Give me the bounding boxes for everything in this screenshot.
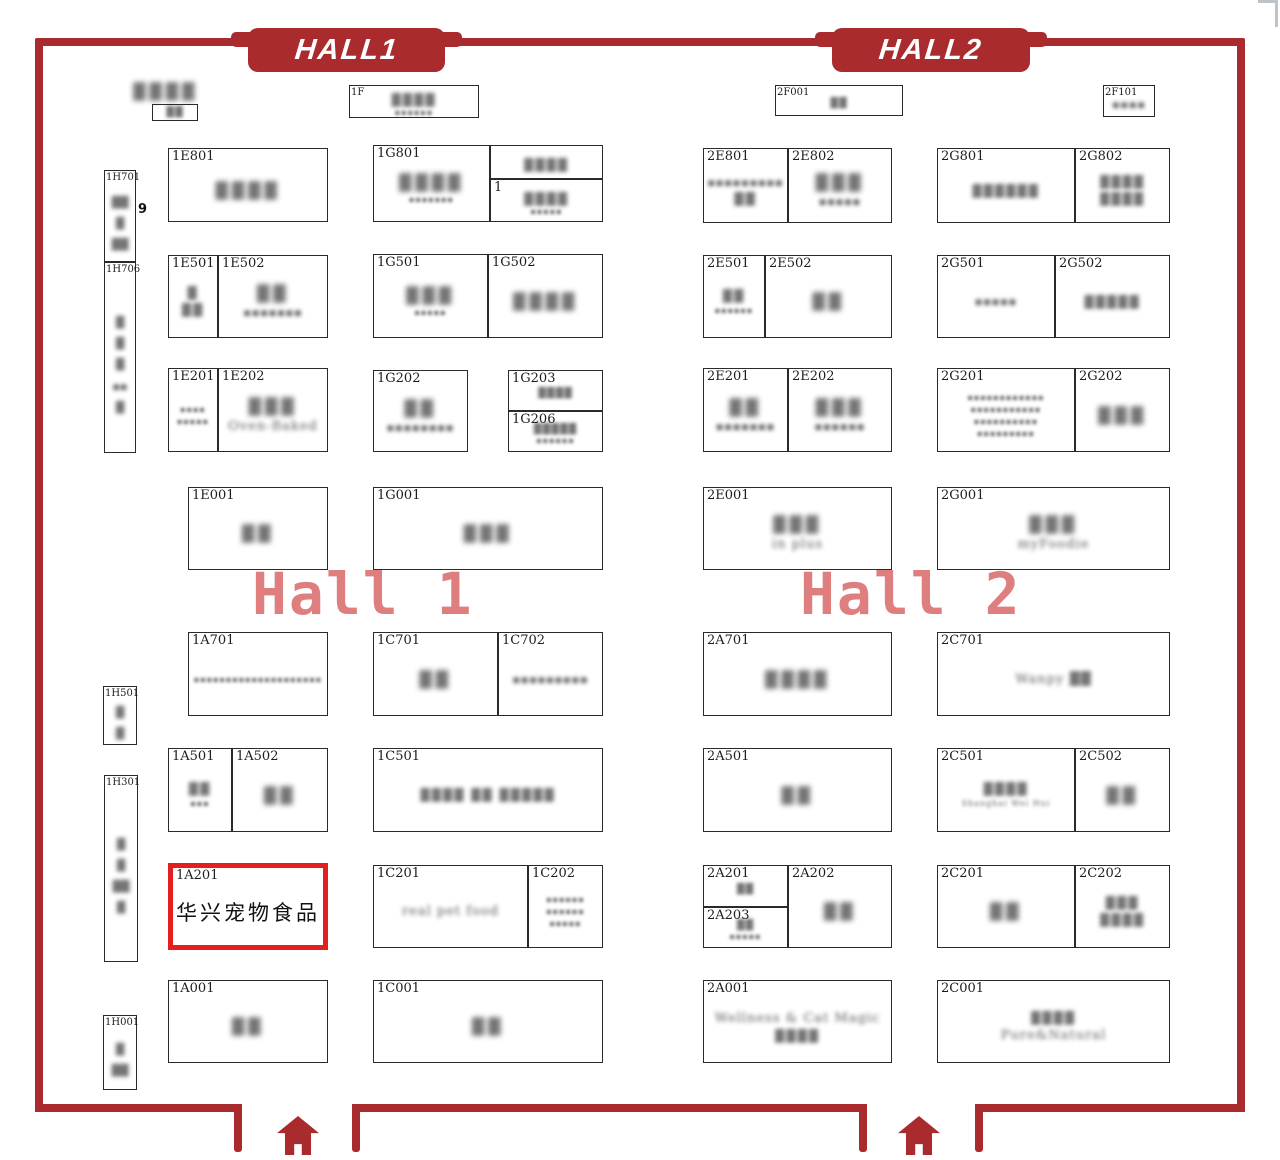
booth-1G502: 1G502▓▓▓▓ [488, 254, 603, 338]
booth-1E201: 1E201▪▪▪▪▪▪▪▪▪ [168, 368, 218, 452]
booth-2G502: 2G502▓▓▓▓▓ [1055, 255, 1170, 338]
booth-code: 1H001 [105, 1017, 139, 1028]
booth-1G001: 1G001▓▓▓ [373, 487, 603, 570]
booth-1A501: 1A501▓▓▪▪▪ [168, 748, 232, 832]
booth-1F: 1F▓▓▓▓▪▪▪▪▪▪ [349, 85, 479, 118]
booth-code: 1E801 [172, 150, 215, 164]
booth-code: 2C501 [941, 750, 984, 764]
booth-1H706: 1H706▓▓▓▪▪▓ [104, 262, 136, 453]
booth-2E501: 2E501▓▓▪▪▪▪▪▪ [703, 255, 765, 338]
booth-name-blurred: ▓▓▓▓▓ [105, 171, 135, 261]
booth-code: 1C701 [377, 634, 420, 648]
booth-1E801: 1E801▓▓▓▓ [168, 148, 328, 222]
booth-code: 1H706 [106, 264, 140, 275]
booth-code: 2C502 [1079, 750, 1122, 764]
booth-2A201: 2A201▓▓ [703, 865, 788, 907]
booth-2C001: 2C001▓▓▓▓Pure&Natural [937, 980, 1170, 1063]
wall-hook [352, 1104, 360, 1152]
booth-2E801: 2E801▪▪▪▪▪▪▪▪▪▓▓ [703, 148, 788, 223]
booth-code: 1G001 [377, 489, 420, 503]
booth-code: 1A501 [172, 750, 214, 764]
booth-1H301: 1H301▓▓▓▓▓ [104, 775, 138, 962]
booth-code: 2G201 [941, 370, 984, 384]
bottom-wall-segment-right [975, 1104, 1245, 1112]
booth-code: 2G801 [941, 150, 984, 164]
booth-1C501: 1C501▓▓▓▓ ▓▓ ▓▓▓▓▓ [373, 748, 603, 832]
count-label-9: 9 [138, 202, 147, 217]
booth-code: 2A701 [707, 634, 749, 648]
booth-2G202: 2G202▓▓▓ [1075, 368, 1170, 452]
booth-code: 1G203 [512, 372, 555, 386]
booth-2G201: 2G201▪▪▪▪▪▪▪▪▪▪▪▪▪▪▪▪▪▪▪▪▪▪▪▪▪▪▪▪▪▪▪▪▪▪▪… [937, 368, 1075, 452]
booth-1E202: 1E202▓▓▓Oven-Baked [218, 368, 328, 452]
booth-1E501: 1E501▓▓▓ [168, 255, 218, 338]
booth-1G203: 1G203▓▓▓▓ [508, 370, 603, 411]
booth-2C501: 2C501▓▓▓▓Shanghai Wei Hui [937, 748, 1075, 832]
hall1-banner: HALL1 [248, 28, 445, 72]
booth-name-blurred: ▓▓▓▓▓ [105, 776, 137, 961]
booth-name-blurred: ▓▓▓▓▪▪▪▪▪ [491, 180, 602, 221]
wall-hook [975, 1104, 983, 1152]
booth-1H701: 1H701▓▓▓▓▓ [104, 170, 136, 262]
booth-code: 1E201 [172, 370, 215, 384]
booth-code: 2G001 [941, 489, 984, 503]
booth-code: 1E501 [172, 257, 215, 271]
booth-1G501: 1G501▓▓▓▪▪▪▪▪ [373, 254, 488, 338]
booth-code: 2A203 [707, 909, 749, 923]
booth-code: 1C001 [377, 982, 420, 996]
hall1-watermark: Hall 1 [252, 560, 474, 628]
booth-2A001: 2A001Wellness & Cat Magic▓▓▓▓ [703, 980, 892, 1063]
wall-hook [234, 1104, 242, 1152]
hall2-watermark: Hall 2 [800, 560, 1022, 628]
booth-2A203: 2A203▓▓▪▪▪▪▪ [703, 907, 788, 948]
booth-2G802: 2G802▓▓▓▓▓▓▓▓ [1075, 148, 1170, 223]
booth-code: 2A501 [707, 750, 749, 764]
booth-code: 2E202 [792, 370, 835, 384]
booth-2F001: 2F001▓▓ [775, 85, 903, 116]
booth-1C202: 1C202▪▪▪▪▪▪▪▪▪▪▪▪▪▪▪▪▪ [528, 865, 603, 948]
booth-1C201: 1C201real pet food [373, 865, 528, 948]
booth-code: 2C202 [1079, 867, 1122, 881]
booth-code: 2G502 [1059, 257, 1102, 271]
booth-1E502: 1E502▓▓▪▪▪▪▪▪▪ [218, 255, 328, 338]
booth-1A201: 1A201华兴宠物食品 [168, 863, 328, 950]
booth-code: 2E501 [707, 257, 750, 271]
booth-code: 1H501 [105, 688, 139, 699]
booth-code: 1G206 [512, 413, 555, 427]
booth-code: 2G202 [1079, 370, 1122, 384]
booth-code: 1H701 [106, 172, 140, 183]
booth-1E001: 1E001▓▓ [188, 487, 328, 570]
booth-code: 1F [351, 87, 364, 98]
bottom-wall-segment-middle [352, 1104, 867, 1112]
entrance-arrow-hall1 [277, 1116, 319, 1155]
booth-code: 1A502 [236, 750, 278, 764]
booth-2C201: 2C201▓▓ [937, 865, 1075, 948]
booth-1G206: 1G206▓▓▓▓▓▪▪▪▪▪▪ [508, 411, 603, 452]
booth-1C001: 1C001▓▓ [373, 980, 603, 1063]
entrance-arrow-hall2 [898, 1116, 940, 1155]
wall-hook [859, 1104, 867, 1152]
booth-name-blurred: ▓▓ [153, 105, 197, 120]
booth-code: 1C702 [502, 634, 545, 648]
booth-code: 2E802 [792, 150, 835, 164]
booth-1G202: 1G202▓▓▪▪▪▪▪▪▪▪ [373, 370, 468, 452]
hall1-banner-label: HALL1 [293, 34, 400, 67]
booth-2C701: 2C701Wanpy ▓▓ [937, 632, 1170, 716]
blurred-top-label: ▓▓▓▓ [133, 82, 198, 101]
booth-code: 1C501 [377, 750, 420, 764]
booth-name-blurred: ▓▓▓▓▪▪▪▪▪▪ [350, 86, 478, 117]
booth-1G801: 1G801▓▓▓▓▪▪▪▪▪▪▪ [373, 145, 490, 222]
booth-code: 2C701 [941, 634, 984, 648]
booth-code: 1H301 [106, 777, 140, 788]
bottom-wall-segment-left [35, 1104, 242, 1112]
booth-name-blurred: ▓▓▓▓ [491, 146, 602, 178]
booth-2E202: 2E202▓▓▓▪▪▪▪▪▪ [788, 368, 892, 452]
booth-code: 2G501 [941, 257, 984, 271]
booth-code: 2C001 [941, 982, 984, 996]
booth-1C701: 1C701▓▓ [373, 632, 498, 716]
booth-code: 2F001 [777, 87, 809, 98]
booth-code: 1G502 [492, 256, 535, 270]
booth-1C702: 1C702▪▪▪▪▪▪▪▪▪ [498, 632, 603, 716]
booth-2G001: 2G001▓▓▓myFoodie [937, 487, 1170, 570]
booth-code: 1E502 [222, 257, 265, 271]
booth-1H501: 1H501▓▓ [103, 686, 137, 745]
booth-2A501: 2A501▓▓ [703, 748, 892, 832]
booth-name-blurred: ▓▓▓▪▪▓ [105, 263, 135, 452]
booth-1A502: 1A502▓▓ [232, 748, 328, 832]
booth-2E802: 2E802▓▓▓▪▪▪▪▪ [788, 148, 892, 223]
booth-code: 1C202 [532, 867, 575, 881]
booth-1A701: 1A701▪▪▪▪▪▪▪▪▪▪▪▪▪▪▪▪▪▪▪▪ [188, 632, 328, 716]
booth-unlabeled: ▓▓▓▓ [490, 145, 603, 179]
booth-code: 1A201 [176, 869, 218, 883]
booth-2C202: 2C202▓▓▓▓▓▓▓ [1075, 865, 1170, 948]
booth-code: 1A701 [192, 634, 234, 648]
booth-code: 2E201 [707, 370, 750, 384]
booth-code: 2E801 [707, 150, 750, 164]
booth-unlabeled: ▓▓ [152, 104, 198, 121]
booth-code: 1E001 [192, 489, 235, 503]
hall2-banner-label: HALL2 [878, 34, 985, 67]
booth-code: 1E202 [222, 370, 265, 384]
booth-code: 2G802 [1079, 150, 1122, 164]
booth-2E502: 2E502▓▓ [765, 255, 892, 338]
booth-1A001: 1A001▓▓ [168, 980, 328, 1063]
booth-code: 1G202 [377, 372, 420, 386]
booth-code: 1 [494, 181, 502, 195]
booth-code: 2A201 [707, 867, 749, 881]
booth-1: 1▓▓▓▓▪▪▪▪▪ [490, 179, 603, 222]
booth-2A701: 2A701▓▓▓▓ [703, 632, 892, 716]
booth-code: 2F101 [1105, 87, 1137, 98]
booth-code: 1G801 [377, 147, 420, 161]
booth-2G501: 2G501▪▪▪▪▪ [937, 255, 1055, 338]
booth-code: 2A202 [792, 867, 834, 881]
booth-code: 2A001 [707, 982, 749, 996]
booth-2E201: 2E201▓▓▪▪▪▪▪▪▪ [703, 368, 788, 452]
booth-code: 1C201 [377, 867, 420, 881]
hall2-banner: HALL2 [832, 28, 1030, 72]
page-corner-artifact [1258, 0, 1278, 27]
booth-code: 1G501 [377, 256, 420, 270]
booth-2E001: 2E001▓▓▓in plus [703, 487, 892, 570]
booth-code: 2C201 [941, 867, 984, 881]
booth-code: 2E502 [769, 257, 812, 271]
booth-2G801: 2G801▓▓▓▓▓▓ [937, 148, 1075, 223]
booth-code: 1A001 [172, 982, 214, 996]
booth-2F101: 2F101▪▪▪▪ [1103, 85, 1155, 117]
floorplan: HALL1 HALL2 Hall 1 Hall 2 ▓▓1F▓▓▓▓▪▪▪▪▪▪… [0, 0, 1280, 1160]
booth-1H001: 1H001▓▓▓ [103, 1015, 137, 1090]
booth-2A202: 2A202▓▓ [788, 865, 892, 948]
booth-2C502: 2C502▓▓ [1075, 748, 1170, 832]
booth-code: 2E001 [707, 489, 750, 503]
